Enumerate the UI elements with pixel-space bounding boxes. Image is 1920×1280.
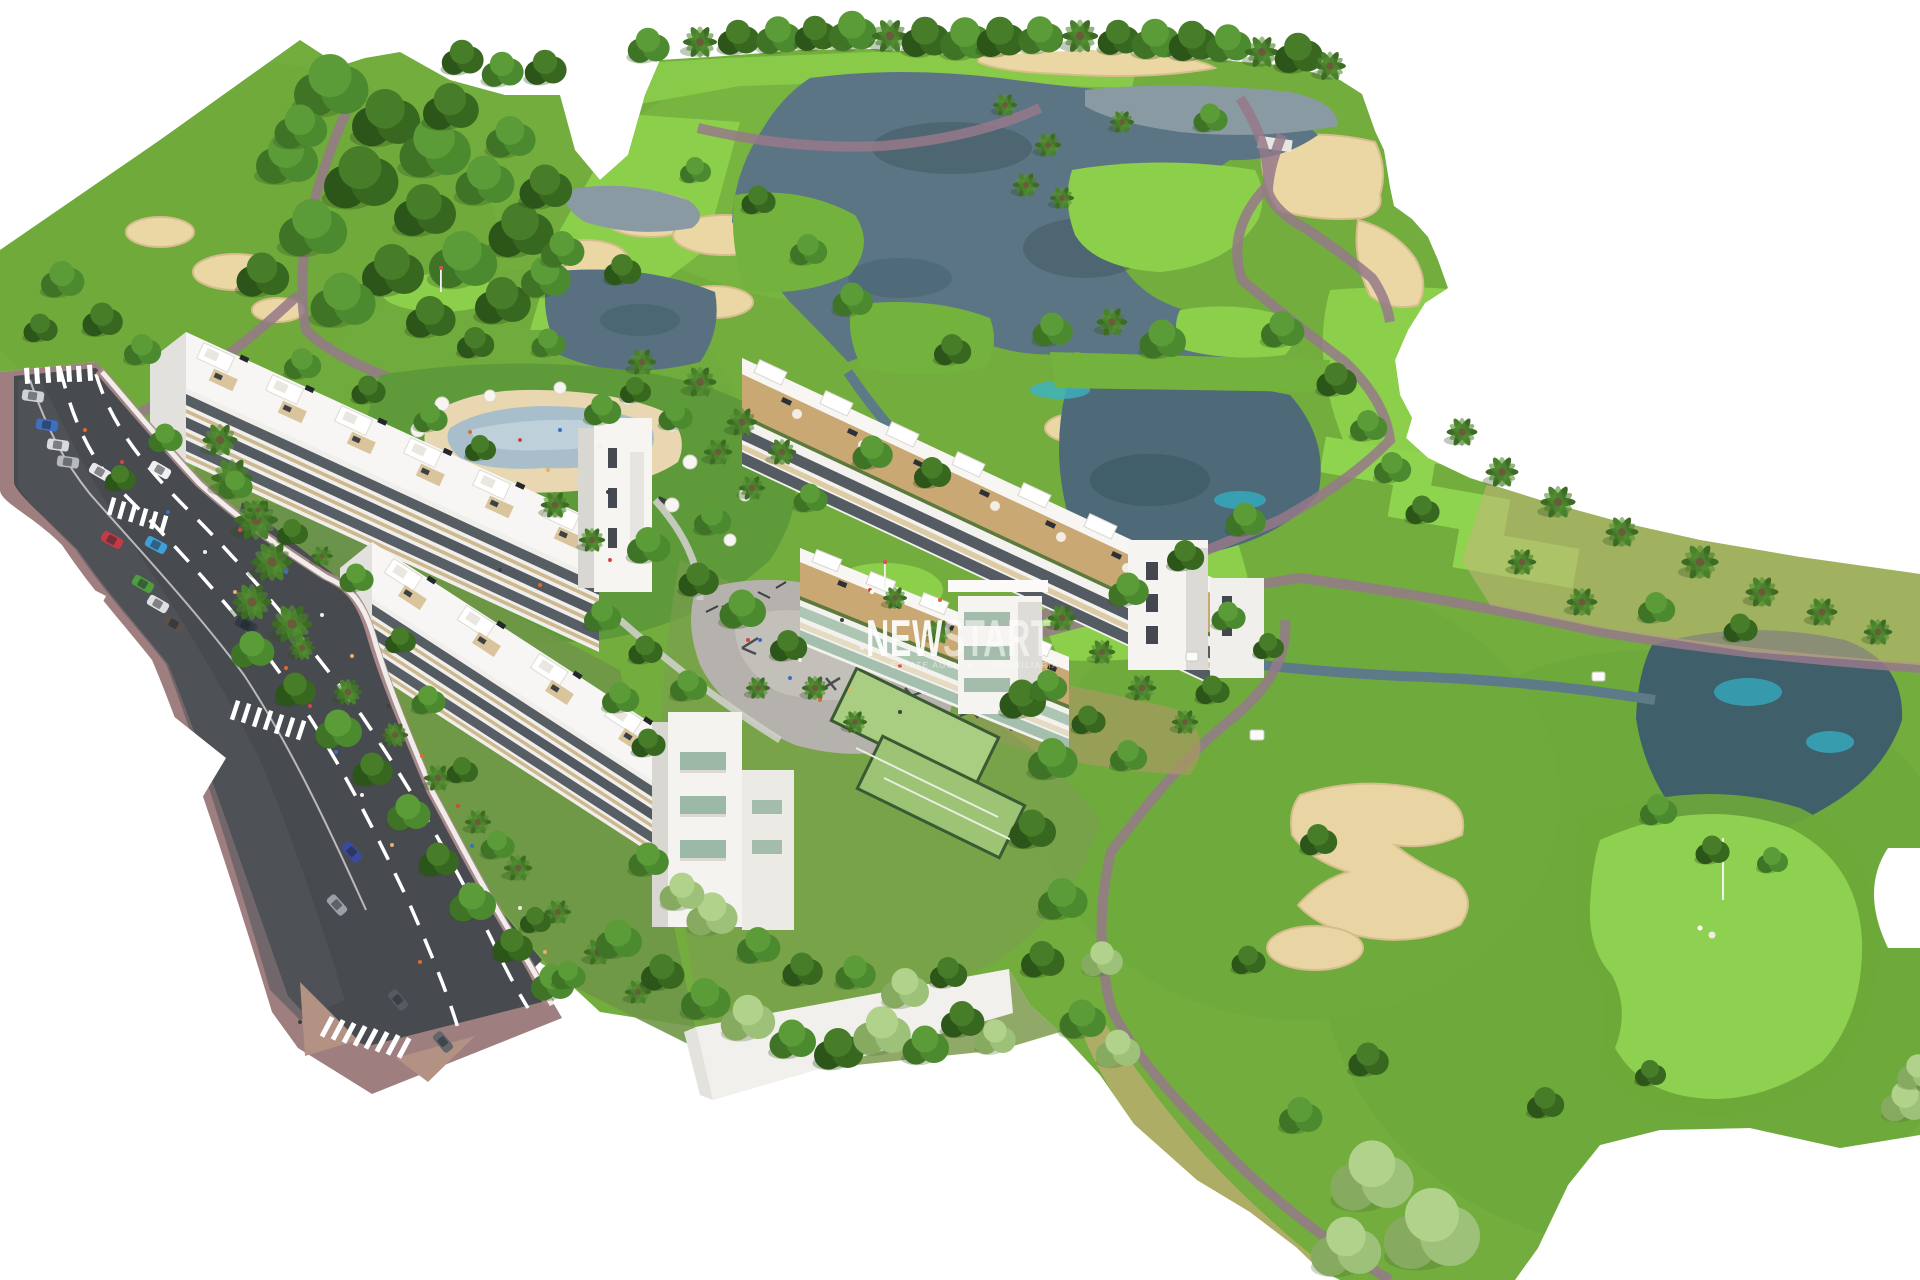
svg-text:NEWSTART: NEWSTART [866, 610, 1051, 668]
svg-text:ESTATE AGENTS INMOBILIARIA: ESTATE AGENTS INMOBILIARIA [891, 661, 1059, 670]
